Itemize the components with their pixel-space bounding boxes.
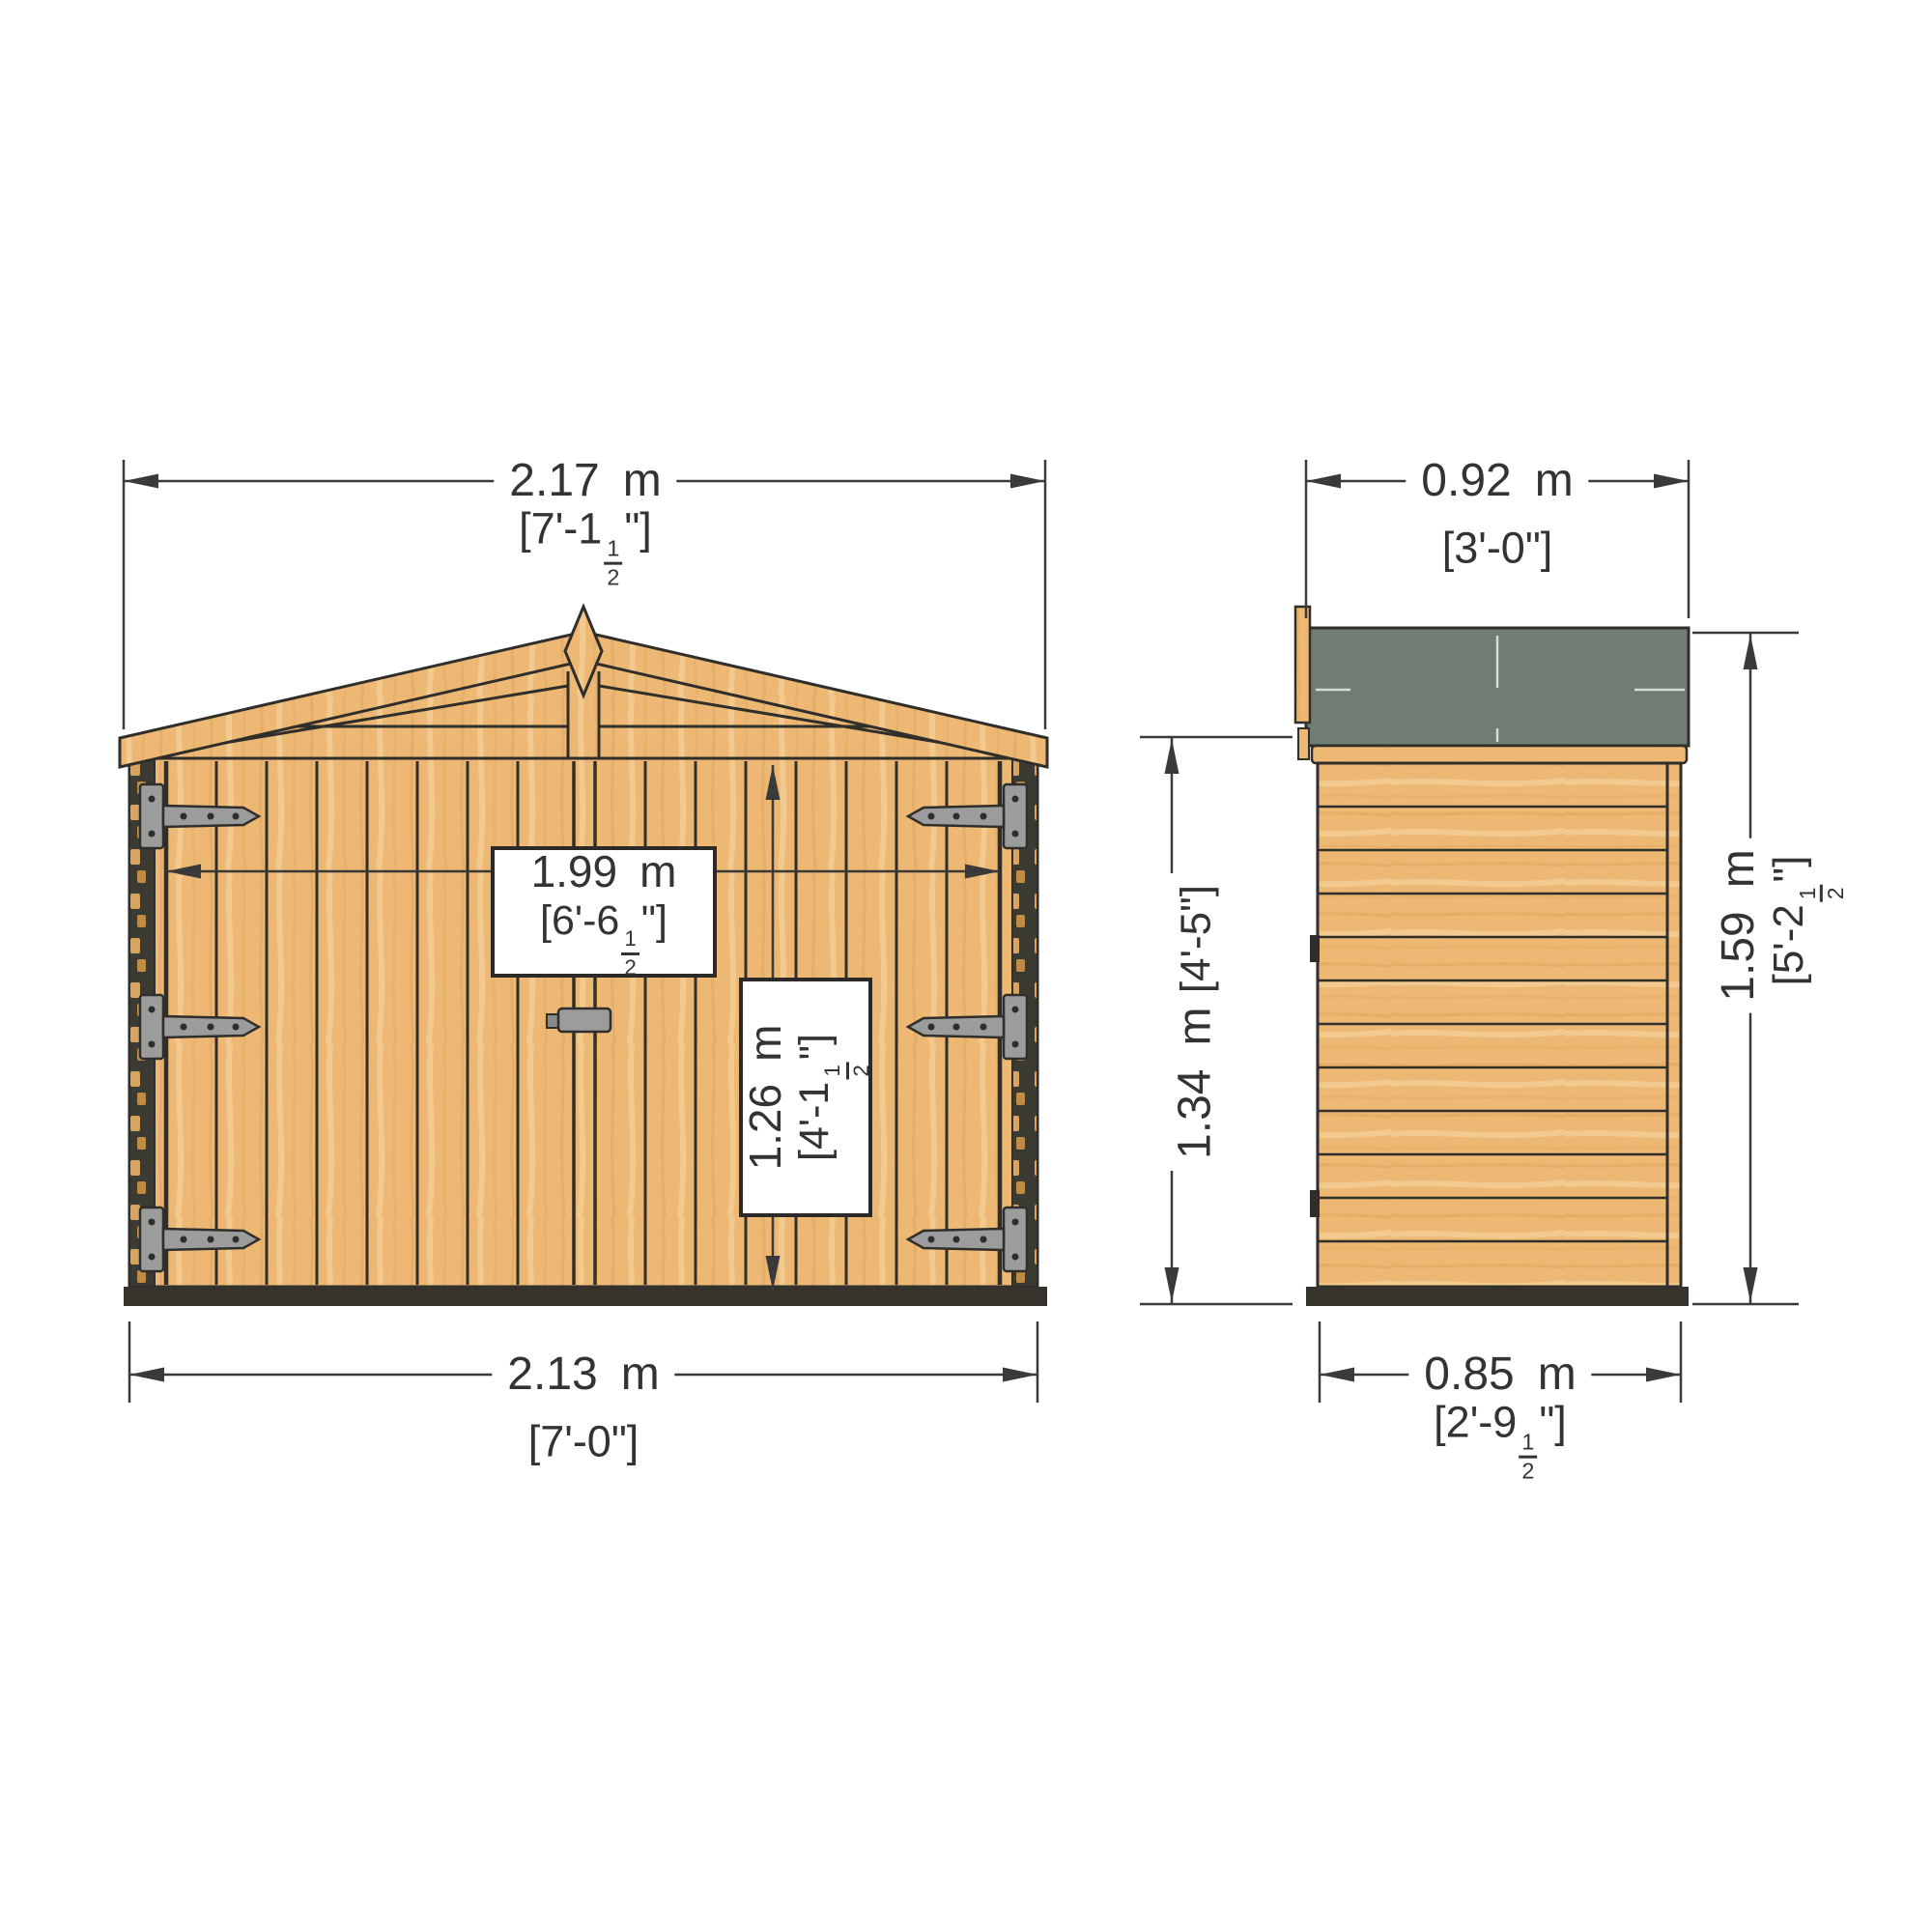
dim-side-base-depth-imperial: [2'-912"] <box>1418 1400 1582 1486</box>
front-base-line <box>124 1287 1047 1306</box>
dim-overall-height-metric: 1.59m <box>1713 849 1764 1001</box>
side-barge-board <box>1295 607 1310 723</box>
dim-door-height-imperial: [4'-112"] <box>791 1025 872 1171</box>
dim-eaves-height-label: 1.34m [4'-5"] <box>1165 873 1226 1171</box>
dim-door-height-box: 1.26m [4'-112"] <box>739 978 872 1217</box>
dim-overall-height-imperial: [5'-212"] <box>1765 856 1847 986</box>
dim-door-width-metric: 1.99m <box>531 845 677 897</box>
technical-drawing-svg <box>0 0 1932 1932</box>
dim-front-base-width-metric: 2.13m <box>492 1349 674 1401</box>
dim-door-height-metric: 1.26m <box>739 1025 791 1171</box>
dim-front-overall-width-imperial: [7'-112"] <box>503 506 668 592</box>
shed-dimension-drawing: 2.17m [7'-112"] 0.92m [3'-0"] 1.99m [6'-… <box>0 0 1932 1932</box>
side-hinge-edge-lower <box>1310 1190 1320 1217</box>
dim-side-base-depth-metric: 0.85m <box>1408 1349 1591 1401</box>
side-base-line <box>1306 1287 1689 1306</box>
dim-side-overall-depth-metric: 0.92m <box>1406 455 1588 507</box>
side-elevation-view <box>1295 607 1689 1306</box>
dim-eaves-height-imperial: [4'-5"] <box>1173 885 1221 993</box>
dim-overall-height-label: 1.59m [5'-212"] <box>1708 838 1851 1012</box>
dim-front-overall-width-metric: 2.17m <box>494 455 676 507</box>
side-hinge-edge-upper <box>1310 935 1320 962</box>
dim-door-width-box: 1.99m [6'-612"] <box>491 846 717 978</box>
dim-side-overall-depth-imperial: [3'-0"] <box>1427 525 1569 572</box>
dim-front-base-width-imperial: [7'-0"] <box>513 1418 655 1465</box>
dim-door-width-imperial: [6'-612"] <box>540 897 668 979</box>
side-fascia-strip <box>1312 746 1687 763</box>
side-barge-board-lower <box>1298 728 1309 759</box>
dim-eaves-height-metric: 1.34m <box>1170 1008 1221 1159</box>
